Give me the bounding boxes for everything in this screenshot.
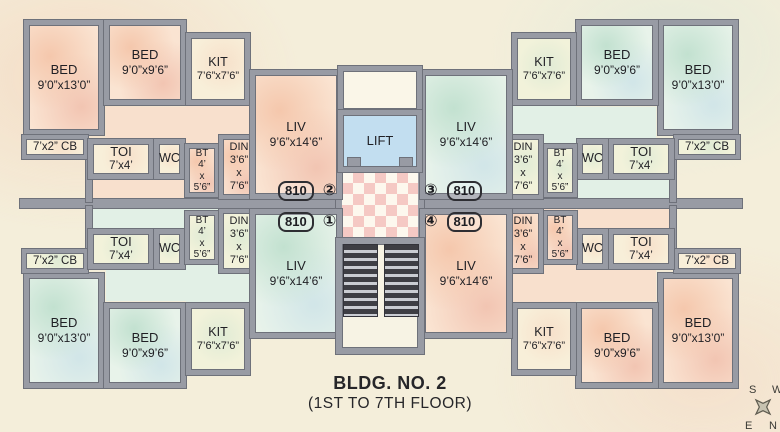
room-dims: 9’6”x14’6”: [440, 274, 493, 288]
room-dims: 3’6” x 7’6”: [230, 154, 248, 193]
room-label: BED: [604, 330, 631, 346]
room-dims: 7’x4’: [629, 160, 653, 174]
flat3-room-bed-large: BED 9’0”x13’0”: [658, 20, 738, 135]
room-dims: 9’0”x13’0”: [672, 331, 725, 345]
room-label: LIV: [456, 258, 476, 274]
room-label: BT: [196, 148, 209, 159]
room-label: BED: [685, 62, 712, 78]
flat1-badge-row: 810 ①: [278, 212, 336, 232]
stair-flight-left: [343, 244, 378, 317]
room-dims: 9’6”x14’6”: [440, 135, 493, 149]
room-label: WC: [159, 241, 180, 257]
flat1-room-wc: WC: [154, 229, 185, 269]
flat3-badge-row: ③ 810: [424, 181, 482, 201]
room-label: LIV: [456, 119, 476, 135]
room-dims: 3’6” x 7’6”: [514, 154, 532, 193]
floor-plan: BED 9’0”x13’0” BED 9’0”x9’6” KIT 7’6”x7’…: [0, 0, 780, 432]
room-dims: 4’ x 5’6”: [194, 159, 211, 193]
flat2-room-bed-small: BED 9’0”x9’6”: [104, 20, 186, 105]
room-dims: 7’6”x7’6”: [197, 70, 239, 83]
room-label: BT: [196, 215, 209, 226]
flat3-lobby-strip: [576, 107, 656, 139]
plan-title-block: BLDG. NO. 2 (1ST TO 7TH FLOOR): [0, 373, 780, 413]
flat4-room-bed-large: BED 9’0”x13’0”: [658, 273, 738, 388]
room-label: BED: [51, 62, 78, 78]
flat2-room-wc: WC: [154, 139, 185, 179]
room-label: 7’x2” CB: [685, 254, 729, 268]
flat3-room-living: LIV 9’6”x14’6”: [420, 70, 512, 199]
room-dims: 7’6”x7’6”: [197, 340, 239, 353]
flat2-lobby-strip: [106, 107, 186, 139]
room-label: TOI: [110, 144, 131, 160]
lift-door-jamb-right: [400, 158, 412, 166]
room-dims: 9’6”x14’6”: [270, 135, 323, 149]
room-label: BED: [685, 315, 712, 331]
room-dims: 7’6”x7’6”: [523, 340, 565, 353]
stair-flight-right: [384, 244, 419, 317]
compass-north-label: N: [769, 420, 777, 432]
room-label: WC: [159, 151, 180, 167]
room-label: KIT: [208, 55, 227, 71]
lift-label: LIFT: [367, 133, 394, 149]
flat4-room-cupboard: 7’x2” CB: [674, 249, 740, 273]
compass-rose: S W E N: [740, 384, 780, 432]
flat4-badge-row: ④ 810: [424, 212, 482, 232]
flat4-lobby-strip: [576, 269, 656, 301]
room-label: BT: [554, 215, 567, 226]
room-label: 7’x2” CB: [685, 140, 729, 154]
entrance-lobby-checker: [342, 172, 418, 238]
flat1-lobby-strip: [106, 269, 186, 301]
room-dims: 9’0”x9’6”: [594, 63, 640, 77]
flat2-room-bed-large: BED 9’0”x13’0”: [24, 20, 104, 135]
flat1-room-bath: BT 4’ x 5’6”: [185, 211, 219, 264]
room-dims: 7’6”x7’6”: [523, 70, 565, 83]
room-label: TOI: [110, 234, 131, 250]
room-label: BT: [554, 148, 567, 159]
compass-south-label: S: [749, 384, 756, 396]
building-title: BLDG. NO. 2: [0, 373, 780, 394]
room-dims: 9’0”x9’6”: [122, 346, 168, 360]
room-label: DIN: [514, 141, 533, 154]
flat4-room-kitchen: KIT 7’6”x7’6”: [512, 303, 576, 375]
room-label: LIV: [286, 119, 306, 135]
flat4-room-wc: WC: [577, 229, 608, 269]
room-dims: 7’x4’: [629, 250, 653, 264]
flat1-area-badge: 810: [278, 212, 314, 232]
flat3-room-bath: BT 4’ x 5’6”: [543, 144, 577, 197]
room-label: DIN: [514, 215, 533, 228]
flat2-number-badge: ②: [323, 183, 337, 199]
room-label: KIT: [534, 325, 553, 341]
room-label: KIT: [534, 55, 553, 71]
room-dims: 9’6”x14’6”: [270, 274, 323, 288]
room-dims: 9’0”x13’0”: [672, 78, 725, 92]
room-dims: 7’x4’: [109, 250, 133, 264]
lift-door-jamb-left: [348, 158, 360, 166]
room-dims: 3’6” x 7’6”: [230, 228, 248, 267]
room-label: BED: [51, 315, 78, 331]
room-label: 7’x2” CB: [33, 140, 77, 154]
flat1-room-kitchen: KIT 7’6”x7’6”: [186, 303, 250, 375]
flat3-number-badge: ③: [424, 183, 438, 199]
compass-west-label: W: [772, 384, 780, 396]
flat3-room-bed-small: BED 9’0”x9’6”: [576, 20, 658, 105]
flat2-room-kitchen: KIT 7’6”x7’6”: [186, 33, 250, 105]
room-dims: 4’ x 5’6”: [552, 159, 569, 193]
room-label: TOI: [630, 234, 651, 250]
flat2-room-cupboard: 7’x2” CB: [22, 135, 88, 159]
flat4-room-bath: BT 4’ x 5’6”: [543, 211, 577, 264]
room-label: BED: [132, 330, 159, 346]
flat4-room-toilet: TOI 7’x4’: [608, 229, 674, 269]
room-dims: 9’0”x9’6”: [594, 346, 640, 360]
flat2-room-bath: BT 4’ x 5’6”: [185, 144, 219, 197]
flat4-number-badge: ④: [424, 214, 438, 230]
flat3-room-wc: WC: [577, 139, 608, 179]
flat4-area-badge: 810: [447, 212, 483, 232]
flat3-area-badge: 810: [447, 181, 483, 201]
room-dims: 3’6” x 7’6”: [514, 228, 532, 267]
room-label: BED: [132, 47, 159, 63]
flat3-room-toilet: TOI 7’x4’: [608, 139, 674, 179]
lift-machine-room: [338, 66, 422, 114]
room-label: WC: [582, 151, 603, 167]
room-dims: 9’0”x9’6”: [122, 63, 168, 77]
flat2-room-living: LIV 9’6”x14’6”: [250, 70, 342, 199]
room-label: LIV: [286, 258, 306, 274]
flat1-room-cupboard: 7’x2” CB: [22, 249, 88, 273]
flat1-room-toilet: TOI 7’x4’: [88, 229, 154, 269]
room-dims: 9’0”x13’0”: [38, 78, 91, 92]
flat3-room-cupboard: 7’x2” CB: [674, 135, 740, 159]
room-label: BED: [604, 47, 631, 63]
compass-east-label: E: [745, 420, 752, 432]
flat3-room-kitchen: KIT 7’6”x7’6”: [512, 33, 576, 105]
flat1-number-badge: ①: [323, 214, 337, 230]
room-label: TOI: [630, 144, 651, 160]
room-dims: 4’ x 5’6”: [194, 226, 211, 260]
room-label: DIN: [230, 215, 249, 228]
flat2-room-toilet: TOI 7’x4’: [88, 139, 154, 179]
room-label: 7’x2” CB: [33, 254, 77, 268]
room-dims: 4’ x 5’6”: [552, 226, 569, 260]
room-dims: 7’x4’: [109, 160, 133, 174]
room-label: KIT: [208, 325, 227, 341]
flat1-room-bed-large: BED 9’0”x13’0”: [24, 273, 104, 388]
compass-star-icon: [753, 397, 773, 417]
room-label: WC: [582, 241, 603, 257]
room-label: DIN: [230, 141, 249, 154]
room-dims: 9’0”x13’0”: [38, 331, 91, 345]
flat2-area-badge: 810: [278, 181, 314, 201]
flat2-badge-row: 810 ②: [278, 181, 336, 201]
floor-range-subtitle: (1ST TO 7TH FLOOR): [0, 395, 780, 413]
